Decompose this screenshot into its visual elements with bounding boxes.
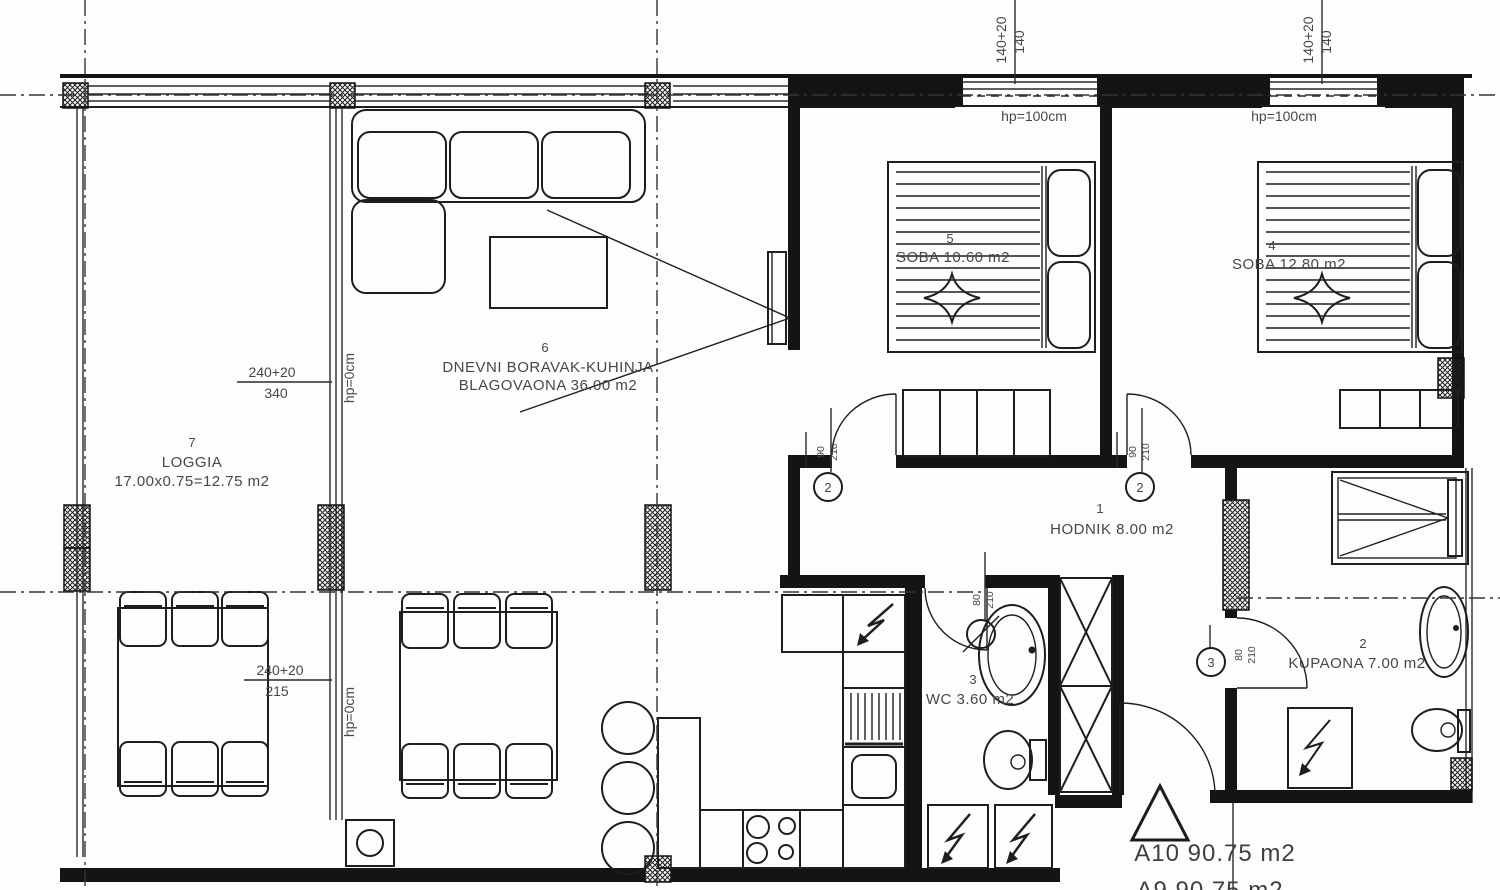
- dim-text: 340: [264, 385, 288, 401]
- window-bedroom5: [955, 76, 1105, 107]
- walls: [60, 74, 1472, 882]
- dim-text: 140+20: [1300, 16, 1316, 63]
- kitchen: [602, 595, 905, 874]
- room-name: DNEVNI BORAVAK-KUHINJA: [442, 359, 653, 376]
- hp100-label: hp=100cm: [1251, 108, 1317, 124]
- loggia-table: [118, 592, 268, 796]
- room-label-soba5: 5 SOBA 10.60 m2: [896, 231, 1010, 266]
- dim-text: 210: [828, 443, 840, 461]
- room-name: HODNIK 8.00 m2: [1050, 521, 1174, 538]
- toilet: [1412, 709, 1470, 752]
- floor-plan-drawing: 7 LOGGIA 17.00x0.75=12.75 m2 6 DNEVNI BO…: [0, 0, 1500, 890]
- room-label-kupaona: 2 KUPAONA 7.00 m2: [1288, 636, 1425, 672]
- axis-lines: [0, 0, 1500, 890]
- room-number: 2: [1359, 636, 1366, 651]
- bathtub: [1332, 472, 1468, 564]
- stove: [743, 810, 800, 868]
- star-ornament: [1294, 274, 1350, 322]
- coffee-table: [490, 237, 607, 308]
- dim-text: 210: [1140, 443, 1152, 461]
- unit-area-label-cut: A9 90.75 m2: [1136, 877, 1283, 890]
- door-tag: 2: [1136, 480, 1143, 495]
- room-number: 5: [946, 231, 953, 246]
- column-fixture: [346, 820, 394, 866]
- fridge: [843, 747, 905, 805]
- room-name: WC 3.60 m2: [926, 691, 1014, 708]
- dim-text: 210: [1246, 646, 1258, 664]
- room-name: LOGGIA: [162, 454, 223, 471]
- room-area: BLAGOVAONA 36.00 m2: [459, 377, 637, 394]
- room-label-soba4: 4 SOBA 12.80 m2: [1232, 238, 1346, 273]
- dim-text: 90: [1127, 446, 1139, 458]
- dresser-bedroom5: [903, 390, 1050, 456]
- dim-text: 140+20: [993, 16, 1009, 63]
- unit-area-label: A10 90.75 m2: [1134, 840, 1295, 867]
- stools: [602, 702, 654, 874]
- room-label-loggia: 7 LOGGIA 17.00x0.75=12.75 m2: [114, 435, 269, 490]
- dim-text: 80: [1233, 649, 1245, 661]
- dim-text: 140: [1011, 30, 1027, 54]
- room-dims: 17.00x0.75=12.75 m2: [114, 473, 269, 490]
- dim-text: 80: [971, 594, 983, 606]
- room-name: SOBA 10.60 m2: [896, 249, 1010, 266]
- hp0-label: hp=0cm: [341, 353, 357, 403]
- door-tag: 2: [824, 480, 831, 495]
- sink: [1420, 587, 1468, 677]
- room-number: 6: [541, 340, 548, 355]
- dishwasher: [843, 688, 905, 747]
- dining-table-living: [400, 594, 557, 798]
- room-name: SOBA 12.80 m2: [1232, 256, 1346, 273]
- washing-machine: [1288, 708, 1352, 788]
- star-ornament: [924, 274, 980, 322]
- dimension-window2: 140+20 140: [1300, 16, 1334, 63]
- dim-text: 210: [984, 591, 996, 609]
- dim-text: 240+20: [248, 364, 295, 380]
- boiler-arrow-icon: [857, 604, 893, 646]
- door-tag: 3: [1207, 655, 1214, 670]
- dimension-window1: 140+20 140: [993, 16, 1027, 63]
- electrical-cabinets: [928, 805, 1052, 868]
- dim-text: 215: [265, 683, 289, 699]
- shaft-closet: [1060, 578, 1112, 792]
- room-number: 7: [188, 435, 195, 450]
- room-label-living: 6 DNEVNI BORAVAK-KUHINJA BLAGOVAONA 36.0…: [442, 340, 653, 394]
- hp0-label: hp=0cm: [341, 687, 357, 737]
- hp100-label: hp=100cm: [1001, 108, 1067, 124]
- bathroom-fixtures: [1288, 472, 1470, 788]
- room-number: 1: [1096, 501, 1103, 516]
- room-number: 3: [969, 672, 976, 687]
- entrance-triangle: [1132, 786, 1188, 840]
- door-dims: 90 210 90 210 80 210 80 210: [815, 443, 1258, 664]
- room-name: KUPAONA 7.00 m2: [1288, 655, 1425, 672]
- dim-text: 240+20: [256, 662, 303, 678]
- room-label-hodnik: 1 HODNIK 8.00 m2: [1050, 501, 1174, 538]
- dim-text: 140: [1318, 30, 1334, 54]
- corner-sofa: [352, 110, 645, 293]
- dim-text: 90: [815, 446, 827, 458]
- floor-plan-sheet: 7 LOGGIA 17.00x0.75=12.75 m2 6 DNEVNI BO…: [0, 0, 1500, 890]
- room-number: 4: [1268, 238, 1275, 253]
- window-bedroom4: [1262, 76, 1385, 107]
